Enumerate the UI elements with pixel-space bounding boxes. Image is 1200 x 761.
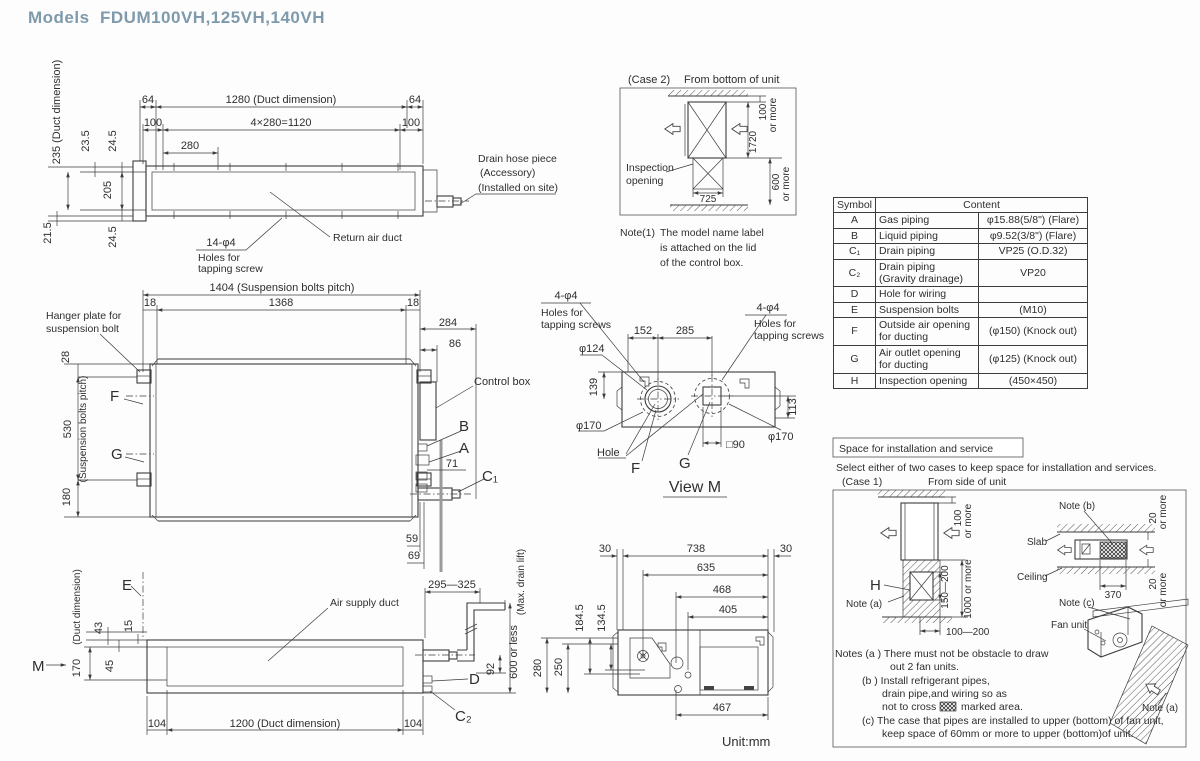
- label-tapping-screws-right: tapping screws: [754, 330, 824, 342]
- label-or-more: or more: [1158, 494, 1169, 529]
- right-step: [423, 170, 437, 212]
- label-control-box: Control box: [474, 376, 531, 388]
- dim-phi170-right: φ170: [768, 431, 794, 443]
- dim-100-right: 100: [402, 117, 420, 129]
- airflow-arrow: [732, 124, 747, 135]
- section-intro: Select either of two cases to keep space…: [836, 462, 1156, 474]
- dim-184-5: 184.5: [574, 604, 586, 632]
- airflow-arrow: [1140, 545, 1154, 555]
- symbol-content-table: Symbol Content A Gas piping φ15.88(5/8")…: [833, 197, 1088, 389]
- dim-24-5-top: 24.5: [107, 130, 119, 151]
- dim-104-right: 104: [404, 718, 422, 730]
- symbol-g: G: [111, 446, 123, 463]
- label-suspension-pitch: (Suspension bolts pitch): [78, 376, 89, 483]
- airflow-arrow: [881, 528, 896, 539]
- dim-235-duct: 235 (Duct dimension): [51, 60, 63, 165]
- case2-label: (Case 2): [628, 74, 670, 86]
- dim-467: 467: [713, 702, 731, 714]
- air-supply-opening: [167, 647, 403, 686]
- case1-slab-diagram: Note (b) Slab Ceiling 370 20 or more 20 …: [1017, 494, 1169, 607]
- label-air-supply-duct: Air supply duct: [330, 597, 399, 609]
- label-4-phi4-left: 4-φ4: [554, 290, 577, 302]
- unit-body-top-view: [146, 166, 423, 216]
- hole-marks: [658, 637, 764, 651]
- dim-18-left: 18: [144, 297, 156, 309]
- dim-1404: 1404 (Suspension bolts pitch): [210, 282, 355, 294]
- table-row: F Outside air opening for ducting (φ150)…: [834, 318, 1088, 346]
- note1-line1: The model name label: [660, 227, 764, 239]
- dim-86: 86: [449, 338, 461, 350]
- label-note-b: Note (b): [1059, 501, 1095, 512]
- table-row: E Suspension bolts (M10): [834, 302, 1088, 317]
- table-row: C₁ Drain piping VP25 (O.D.32): [834, 244, 1088, 259]
- case1-label: (Case 1): [842, 476, 882, 488]
- front-view: 1404 (Suspension bolts pitch) 18 1368 18…: [46, 282, 531, 572]
- label-holes-for-left: Holes for: [541, 307, 584, 319]
- label-note-a: Note (a): [846, 599, 882, 610]
- table-row: A Gas piping φ15.88(5/8") (Flare): [834, 213, 1088, 228]
- dim-113: 113: [787, 398, 799, 416]
- bottom-view: 30 738 30 635 468 405 184.5 134.5 280 25…: [532, 543, 792, 749]
- section-title: Space for installation and service: [839, 443, 993, 455]
- label-or-more: or more: [768, 97, 779, 132]
- symbol-f: F: [110, 388, 119, 405]
- dim-139: 139: [588, 378, 600, 396]
- label-installed-on-site: (Installed on site): [478, 182, 558, 194]
- dim-square-90: □90: [726, 439, 745, 451]
- dim-15: 15: [123, 620, 135, 632]
- symbol-d: D: [469, 671, 480, 688]
- dim-600-or-less: 600 or less: [508, 625, 520, 679]
- note-line-7: keep space of 60mm or more to upper (bot…: [882, 728, 1134, 740]
- bracket-plate: [630, 638, 670, 678]
- dim-59: 59: [406, 533, 418, 545]
- note-line-5a: not to cross: [882, 701, 936, 713]
- note1-label: Note(1): [620, 227, 655, 239]
- leader-lines: [100, 334, 484, 492]
- label-tapping-screw: tapping screw: [198, 263, 263, 275]
- marked-area-swatch: [940, 702, 956, 711]
- return-duct-opening: [152, 172, 415, 210]
- dim-64-right: 64: [409, 94, 421, 106]
- dim-134-5: 134.5: [596, 604, 608, 632]
- unit-body-front-view: [150, 364, 418, 517]
- label-or-more: or more: [963, 503, 974, 538]
- dim-18-right: 18: [407, 297, 419, 309]
- side-view: E 43 15 45 (Duct dimension) 170 M Air su…: [32, 549, 527, 735]
- label-4-phi4-right: 4-φ4: [756, 302, 779, 314]
- dim-152: 152: [634, 325, 652, 337]
- drawing-sheet: Models FDUM100VH,125VH,140VH: [0, 0, 1200, 761]
- table-header-row: Symbol Content: [834, 198, 1088, 213]
- dim-1120: 4×280=1120: [251, 117, 312, 129]
- label-ceiling: Ceiling: [1017, 572, 1048, 583]
- dim-295-325: 295—325: [428, 579, 476, 591]
- note1-line2: is attached on the lid: [660, 242, 756, 254]
- note-line-4: drain pipe,and wiring so as: [882, 688, 1007, 700]
- col-symbol: Symbol: [834, 198, 876, 213]
- airflow-arrow: [944, 528, 959, 539]
- left-flange: [133, 161, 146, 221]
- dim-100-left: 100: [144, 117, 162, 129]
- label-hole: Hole: [597, 447, 620, 459]
- dim-284: 284: [439, 317, 457, 329]
- airflow-arrow: [665, 124, 680, 135]
- label-opening: opening: [626, 175, 664, 187]
- tapping-screw-holes: [174, 163, 398, 219]
- case2-diagram: (Case 2) From bottom of unit Inspection …: [620, 74, 796, 269]
- symbol-h: H: [870, 577, 881, 594]
- dim-1280: 1280 (Duct dimension): [226, 94, 337, 106]
- extension-lines: [598, 334, 796, 447]
- electrical-box: [700, 647, 758, 690]
- dim-24-5-bottom: 24.5: [107, 226, 119, 247]
- dim-530: 530: [62, 420, 74, 438]
- leader-lines: [430, 679, 468, 710]
- dim-180: 180: [61, 488, 73, 506]
- hole-for-wiring-d: [423, 676, 432, 683]
- label-inspection: Inspection: [626, 162, 674, 174]
- air-supply-leader: [268, 608, 328, 661]
- dim-69: 69: [408, 550, 420, 562]
- note1-line3: of the control box.: [660, 257, 743, 269]
- dim-468: 468: [713, 584, 731, 596]
- case2-subtitle: From bottom of unit: [684, 74, 779, 86]
- symbol-g-viewm: G: [679, 455, 691, 472]
- dim-280: 280: [532, 659, 544, 677]
- hanger-plates: [137, 370, 431, 486]
- control-box: [420, 382, 436, 440]
- dim-1368: 1368: [269, 297, 293, 309]
- label-duct-dimension: (Duct dimension): [72, 569, 83, 645]
- extension-lines: [48, 100, 423, 221]
- label-slab: Slab: [1027, 537, 1047, 548]
- dim-250: 250: [553, 658, 565, 676]
- dim-104-left: 104: [148, 718, 166, 730]
- col-content: Content: [876, 198, 1088, 213]
- case1-subtitle: From side of unit: [928, 476, 1006, 488]
- symbol-c2: C₂: [455, 708, 472, 725]
- symbol-f-viewm: F: [631, 460, 640, 477]
- symbol-c1: C₁: [482, 468, 498, 485]
- dim-738: 738: [687, 543, 705, 555]
- note-line-5b: marked area.: [961, 701, 1023, 713]
- unit-body-bottom-view: [618, 630, 768, 695]
- note-line-6: (c) The case that pipes are installed to…: [862, 715, 1164, 727]
- label-max-drain-lift: (Max. drain lift): [516, 549, 527, 615]
- view-m: 4-φ4 Holes for tapping screws 152 285 4-…: [541, 290, 824, 497]
- table-row: B Liquid piping φ9.52(3/8") (Flare): [834, 228, 1088, 243]
- top-view: 64 1280 (Duct dimension) 64 100 4×280=11…: [42, 60, 558, 275]
- case1-side-diagram: 100 or more H Note (a) 150—200 1000 or m…: [846, 490, 990, 638]
- label-accessory: (Accessory): [480, 167, 535, 179]
- unit-label: Unit:mm: [722, 734, 770, 749]
- label-or-more: or more: [781, 166, 792, 201]
- drain-piping: [415, 603, 505, 661]
- dim-280: 280: [181, 140, 199, 152]
- dim-205: 205: [102, 181, 114, 199]
- unit-side: [901, 503, 938, 560]
- dim-1000-or-more: 1000 or more: [963, 559, 974, 619]
- label-return-air-duct: Return air duct: [333, 232, 402, 244]
- no-cross-marked-area: [1100, 542, 1126, 558]
- label-14-phi4: 14-φ4: [206, 237, 235, 249]
- dim-43: 43: [93, 622, 105, 634]
- table-row: H Inspection opening (450×450): [834, 373, 1088, 388]
- installation-section: Space for installation and service Selec…: [833, 438, 1188, 747]
- dim-100-200: 100—200: [946, 627, 990, 638]
- view-m-direction-label: M: [32, 658, 45, 675]
- airflow-arrow: [1058, 545, 1072, 555]
- dim-28: 28: [60, 351, 72, 363]
- dim-285: 285: [676, 325, 694, 337]
- drain-hose-piece: [437, 196, 453, 207]
- extension-lines: [64, 290, 476, 569]
- dim-30-right: 30: [780, 543, 792, 555]
- dim-92: 92: [485, 663, 497, 675]
- dim-405: 405: [719, 604, 737, 616]
- note-line-3: (b ) Install refrigerant pipes,: [862, 675, 990, 687]
- symbol-a: A: [459, 440, 469, 457]
- dim-phi124: φ124: [579, 343, 605, 355]
- dim-725: 725: [700, 194, 717, 205]
- label-fan-unit: Fan unit: [1051, 620, 1087, 631]
- label-tapping-screws-left: tapping screws: [541, 319, 611, 331]
- note-line-1: Notes (a ) There must not be obstacle to…: [835, 648, 1049, 660]
- symbol-e: E: [122, 577, 132, 594]
- label-note-c: Note (c): [1059, 598, 1095, 609]
- unit-body-side-view: [147, 640, 423, 693]
- view-m-title: View M: [669, 479, 721, 496]
- label-hanger-plate-2: suspension bolt: [46, 323, 119, 335]
- table-row: G Air outlet opening for ducting (φ125) …: [834, 345, 1088, 373]
- table-row: D Hole for wiring: [834, 287, 1088, 302]
- dim-1200: 1200 (Duct dimension): [230, 718, 341, 730]
- fan-scroll: [1113, 633, 1127, 647]
- label-drain-hose-piece: Drain hose piece: [478, 153, 557, 165]
- dim-23-5: 23.5: [80, 130, 92, 151]
- dim-150-200: 150—200: [940, 565, 951, 609]
- dim-64-left: 64: [142, 94, 154, 106]
- dim-30-left: 30: [599, 543, 611, 555]
- note-line-2: out 2 fan units.: [890, 661, 959, 673]
- dim-phi170-left: φ170: [576, 420, 602, 432]
- dim-71: 71: [446, 458, 458, 470]
- dim-635: 635: [697, 562, 715, 574]
- installation-notes: Notes (a ) There must not be obstacle to…: [835, 648, 1164, 740]
- table-row: C₂ Drain piping (Gravity drainage) VP20: [834, 259, 1088, 287]
- label-note-a2: Note (a): [1142, 703, 1178, 714]
- symbol-b: B: [459, 418, 469, 435]
- dim-21-5: 21.5: [42, 222, 54, 243]
- dim-170: 170: [71, 659, 83, 677]
- label-holes-for-right: Holes for: [754, 318, 797, 330]
- dim-370: 370: [1105, 590, 1122, 601]
- dim-1720: 1720: [748, 130, 759, 153]
- dim-45: 45: [104, 660, 116, 672]
- label-hanger-plate-1: Hanger plate for: [46, 310, 122, 322]
